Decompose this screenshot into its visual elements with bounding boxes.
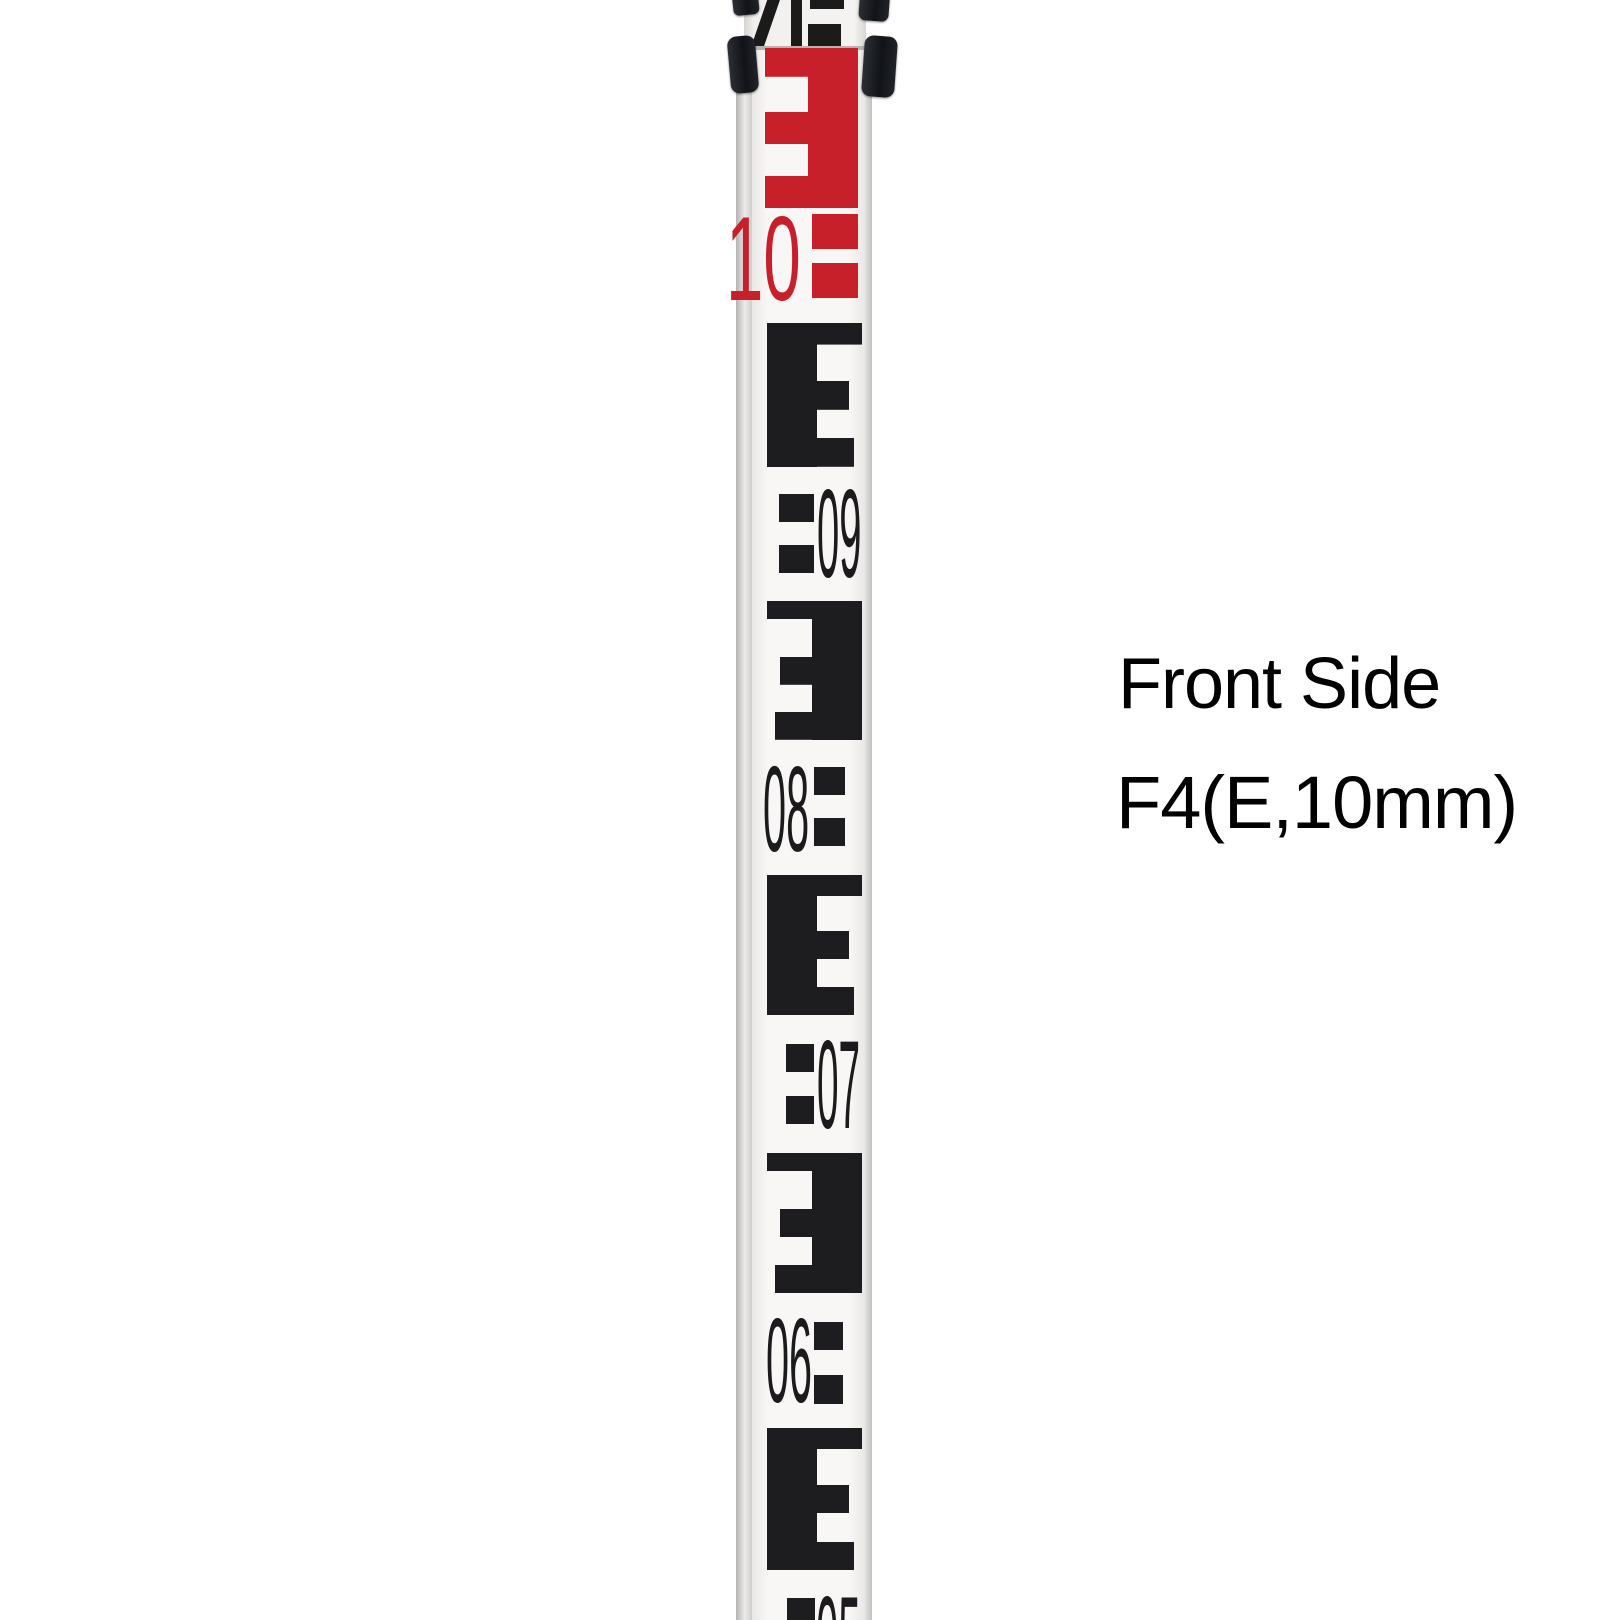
product-photo: 10 09 08 07 06 05 Front Side F4(E,10mm) [0, 0, 1620, 1620]
half-decimeter-block [787, 1598, 815, 1620]
e-mark [767, 875, 862, 1015]
graduation-number-09: 09 [817, 490, 861, 580]
rear-mark-block [808, 24, 841, 47]
graduation-number-07: 07 [817, 1041, 860, 1131]
half-decimeter-block [779, 494, 814, 522]
staff-right-rail [865, 46, 872, 1620]
rear-mark-block-top [810, 0, 844, 9]
e-mark [767, 1428, 862, 1570]
clamp-mid-right [861, 35, 898, 98]
e-mark [767, 323, 862, 467]
graduation-number-05: 05 [816, 1597, 860, 1620]
half-decimeter-block [786, 1096, 814, 1124]
half-decimeter-block [814, 1375, 843, 1404]
rear-mark-vertical-stroke [791, 0, 802, 46]
clamp-top-right [858, 0, 890, 22]
graduation-number-10: 10 [726, 216, 801, 303]
graduation-number-06: 06 [766, 1318, 812, 1404]
e-mark-red [765, 48, 858, 208]
half-decimeter-block [814, 767, 845, 795]
half-decimeter-block [814, 1322, 843, 1350]
e-mark-mirrored [767, 601, 862, 740]
caption-front-side: Front Side [1118, 648, 1440, 720]
half-decimeter-block [812, 263, 858, 298]
graduation-number-08: 08 [763, 765, 809, 853]
half-decimeter-block [786, 1044, 814, 1072]
half-decimeter-block [779, 545, 814, 573]
half-decimeter-block [812, 214, 858, 249]
half-decimeter-block [814, 818, 845, 846]
e-mark-mirrored [767, 1153, 862, 1293]
clamp-mid-left [727, 35, 760, 94]
caption-model: F4(E,10mm) [1116, 766, 1517, 840]
